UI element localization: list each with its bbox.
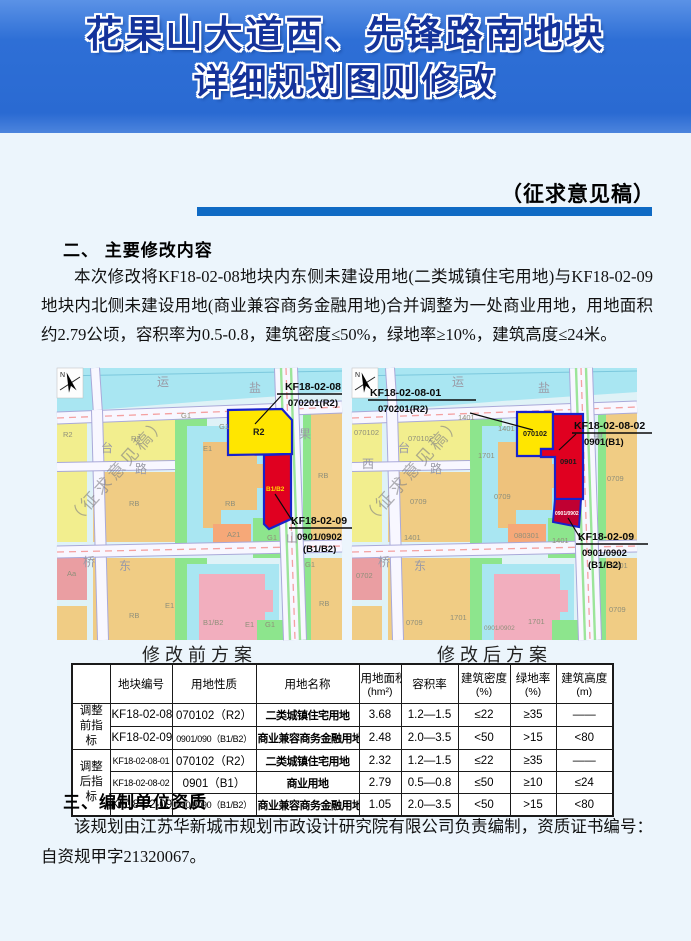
svg-text:G1: G1 [219,422,229,431]
cell: 070102（R2） [172,704,256,727]
blue-rule [197,207,652,216]
table-row: 调整后指标 KF18-02-08-01 070102（R2） 二类城镇住宅用地 … [72,750,613,772]
cell: 二类城镇住宅用地 [256,704,359,727]
svg-text:0901/0902: 0901/0902 [484,625,515,632]
cell: 1.2—1.5 [401,750,458,772]
svg-text:N: N [355,372,360,379]
svg-text:台: 台 [101,440,113,455]
svg-text:KF18-02-09: KF18-02-09 [578,531,634,543]
cell: KF18-02-08 [110,704,172,727]
col-far: 容积率 [401,664,458,704]
svg-text:西: 西 [362,457,374,471]
planning-notice-page: { "header": { "title_line1": "花果山大道西、先锋路… [0,0,691,941]
cell: ≤22 [458,750,510,772]
section3-heading: 三、编制单位资质 [63,788,207,813]
col-green: 绿地率(%) [510,664,556,704]
svg-text:运: 运 [157,375,169,389]
svg-text:(B1/B2): (B1/B2) [588,560,621,571]
svg-text:0709: 0709 [609,605,626,614]
cell: —— [556,750,613,772]
svg-text:果: 果 [299,427,311,441]
svg-text:G1: G1 [181,411,191,420]
svg-text:R2: R2 [63,430,73,439]
page-title-line2: 详细规划图则修改 [0,60,691,106]
svg-text:(B1/B2): (B1/B2) [303,544,336,555]
svg-text:0901(B1): 0901(B1) [584,437,624,448]
svg-text:G1: G1 [265,620,275,629]
svg-text:盐: 盐 [538,381,550,395]
svg-text:E1: E1 [165,601,174,610]
parcel-label: 0901/0902 [555,511,579,517]
parcel-label: B1/B2 [266,486,285,493]
svg-text:1701: 1701 [450,613,467,622]
col-density: 建筑密度(%) [458,664,510,704]
cell: 2.48 [359,727,401,750]
col-land-use-name: 用地名称 [256,664,359,704]
svg-text:运: 运 [452,375,464,389]
svg-text:1401: 1401 [552,536,569,545]
svg-text:RB: RB [129,499,139,508]
cell: 070102（R2） [172,750,256,772]
cell: 2.0—3.5 [401,727,458,750]
parcel-label: 070102 [523,429,547,438]
map-after: 070102 0901 0901/0902 运 盐 台 路 西 桥 东 果 07… [352,368,637,640]
svg-text:盐: 盐 [249,381,261,395]
parcel-label: R2 [253,427,265,437]
svg-text:0709: 0709 [406,618,423,627]
svg-text:1401: 1401 [404,533,421,542]
cell: 0901/090（B1/B2） [172,727,256,750]
svg-text:0901/0902: 0901/0902 [582,548,627,559]
svg-text:东: 东 [119,559,131,573]
svg-text:0702: 0702 [356,571,373,580]
cell: <80 [556,727,613,750]
svg-text:080301: 080301 [514,531,539,540]
col-group [72,664,110,704]
map-before: R2 B1/B2 运 盐 果 山 台 路 桥 东 R2 R2 G1 G1 E1 … [57,368,342,640]
cell: ≤22 [458,704,510,727]
svg-text:KF18-02-08-02: KF18-02-08-02 [574,420,645,432]
svg-text:N: N [60,372,65,379]
svg-text:G1: G1 [305,560,315,569]
col-land-use-code: 用地性质 [172,664,256,704]
map-before-canvas: R2 B1/B2 运 盐 果 山 台 路 桥 东 R2 R2 G1 G1 E1 … [57,368,342,640]
col-area: 用地面积(hm²) [359,664,401,704]
table-row: 调整前指标 KF18-02-08 070102（R2） 二类城镇住宅用地 3.6… [72,704,613,727]
cell: —— [556,704,613,727]
cell: ≥35 [510,750,556,772]
section2-paragraph: 本次修改将KF18-02-08地块内东侧未建设用地(二类城镇住宅用地)与KF18… [41,262,653,349]
svg-text:RB: RB [129,611,139,620]
col-parcel-id: 地块编号 [110,664,172,704]
svg-text:070201(R2): 070201(R2) [378,404,428,415]
svg-text:桥: 桥 [378,555,390,569]
svg-text:0709: 0709 [410,497,427,506]
cell: 0.5—0.8 [401,772,458,794]
svg-text:东: 东 [414,559,426,573]
section3-paragraph: 该规划由江苏华新城市规划市政设计研究院有限公司负责编制，资质证书编号：自资规甲字… [41,812,653,872]
map-after-canvas: 070102 0901 0901/0902 运 盐 台 路 西 桥 东 果 07… [352,368,637,640]
cell: ≤24 [556,772,613,794]
svg-text:B1/B2: B1/B2 [203,618,223,627]
svg-text:070102: 070102 [354,428,379,437]
cell: KF18-02-08-01 [110,750,172,772]
table-row: KF18-02-09 0901/090（B1/B2） 商业兼容商务金融用地 2.… [72,727,613,750]
col-height: 建筑高度(m) [556,664,613,704]
title-banner: 花果山大道西、先锋路南地块 详细规划图则修改 [0,0,691,133]
cell: 1.2—1.5 [401,704,458,727]
cell: 商业用地 [256,772,359,794]
svg-text:桥: 桥 [83,555,95,569]
cell: ≥35 [510,704,556,727]
cell: 商业兼容商务金融用地 [256,727,359,750]
svg-text:E1: E1 [245,620,254,629]
cell: ≤50 [458,772,510,794]
section2-heading: 二、 主要修改内容 [63,236,213,261]
svg-text:070201(R2): 070201(R2) [288,398,338,409]
svg-text:G1: G1 [267,533,277,542]
cell: >15 [510,727,556,750]
plan-maps: R2 B1/B2 运 盐 果 山 台 路 桥 东 R2 R2 G1 G1 E1 … [57,368,637,640]
svg-text:KF18-02-09: KF18-02-09 [291,515,347,527]
svg-text:0901/0902: 0901/0902 [297,532,342,543]
north-arrow-icon: N [57,368,83,398]
svg-text:KF18-02-08-01: KF18-02-08-01 [370,387,441,399]
parcel-label: 0901 [560,457,577,466]
svg-text:RB: RB [319,599,329,608]
draft-stamp: （征求意见稿） [501,178,655,208]
cell: 3.68 [359,704,401,727]
cell: 二类城镇住宅用地 [256,750,359,772]
svg-text:1701: 1701 [528,617,545,626]
svg-text:Aa: Aa [67,569,77,578]
svg-text:0709: 0709 [607,474,624,483]
svg-text:E1: E1 [203,444,212,453]
table-header-row: 地块编号 用地性质 用地名称 用地面积(hm²) 容积率 建筑密度(%) 绿地率… [72,664,613,704]
cell: 2.79 [359,772,401,794]
svg-text:RB: RB [318,471,328,480]
svg-text:1401: 1401 [498,424,515,433]
cell: <50 [458,727,510,750]
cell: ≥10 [510,772,556,794]
svg-text:A21: A21 [227,530,240,539]
svg-text:RB: RB [225,499,235,508]
svg-text:1701: 1701 [478,451,495,460]
cell: KF18-02-09 [110,727,172,750]
svg-text:0709: 0709 [494,492,511,501]
svg-text:KF18-02-08: KF18-02-08 [285,381,341,393]
cell: 2.32 [359,750,401,772]
group-before-label: 调整前指标 [72,704,110,750]
page-title-line1: 花果山大道西、先锋路南地块 [0,12,691,60]
